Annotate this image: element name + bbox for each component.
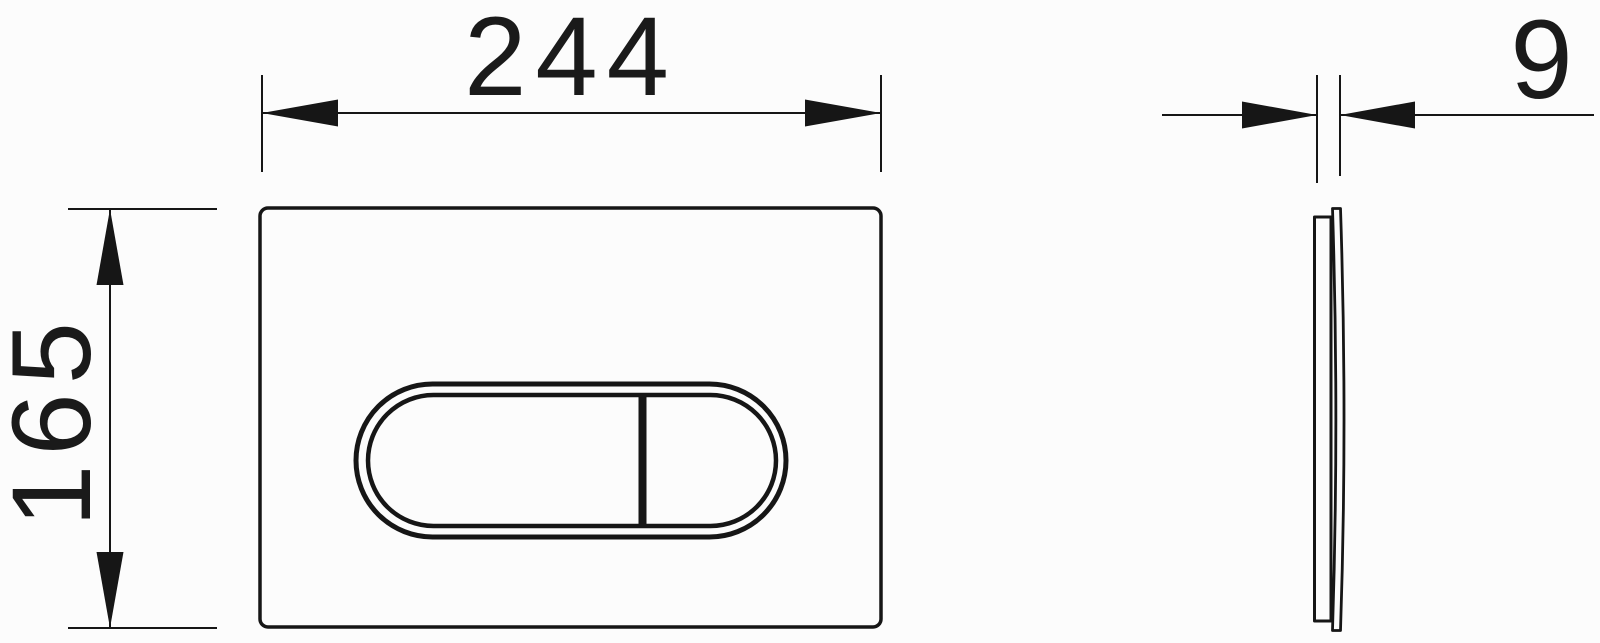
flush-plate-drawing: 244 165 9 <box>0 0 1600 643</box>
side-view <box>1315 209 1345 631</box>
front-view <box>260 208 881 627</box>
thickness-arrowhead-right <box>1340 102 1415 129</box>
width-dimension-label: 244 <box>464 0 678 119</box>
thickness-dimension-label: 9 <box>1510 0 1581 122</box>
dimension-width: 244 <box>262 0 881 172</box>
plate-outline <box>260 208 881 627</box>
thickness-arrowhead-left <box>1242 102 1317 129</box>
width-arrowhead-right <box>805 100 881 127</box>
button-inner-ring <box>368 395 776 526</box>
height-arrowhead-top <box>97 209 124 285</box>
dimension-height: 165 <box>0 209 217 628</box>
technical-drawing-canvas: 244 165 9 <box>0 0 1600 643</box>
height-arrowhead-bottom <box>97 552 124 628</box>
side-view-front-profile <box>1333 209 1345 631</box>
button-outer-ring <box>356 384 786 537</box>
height-dimension-label: 165 <box>0 313 114 527</box>
dimension-thickness: 9 <box>1162 0 1594 183</box>
side-view-back-plate <box>1315 217 1332 621</box>
width-arrowhead-left <box>262 100 338 127</box>
